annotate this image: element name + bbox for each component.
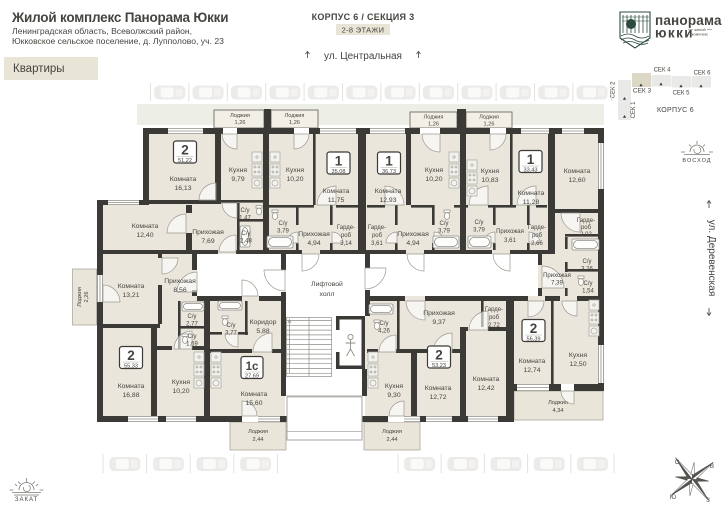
svg-text:Гарде-: Гарде- (485, 307, 503, 313)
svg-text:1,26: 1,26 (428, 122, 439, 128)
svg-text:2,26: 2,26 (84, 292, 90, 303)
svg-text:С/у: С/у (583, 259, 592, 265)
svg-text:9,30: 9,30 (387, 392, 400, 399)
svg-text:10,20: 10,20 (286, 176, 303, 183)
svg-text:С/у: С/у (188, 314, 197, 320)
svg-text:1,26: 1,26 (484, 122, 495, 128)
svg-text:10,20: 10,20 (172, 388, 189, 395)
svg-text:Прихожая: Прихожая (192, 229, 224, 236)
svg-text:12,93: 12,93 (379, 197, 396, 204)
svg-text:Гарде-: Гарде- (577, 218, 595, 224)
svg-text:1: 1 (335, 154, 343, 169)
svg-text:Лоджия: Лоджия (77, 287, 83, 307)
svg-text:10,20: 10,20 (425, 176, 442, 183)
svg-text:ВОСХОД: ВОСХОД (682, 158, 711, 164)
svg-text:СЕК 6: СЕК 6 (694, 71, 711, 77)
svg-text:7,39: 7,39 (551, 281, 563, 287)
svg-text:3,61: 3,61 (504, 238, 516, 244)
svg-text:9,37: 9,37 (432, 319, 445, 326)
svg-text:Комната: Комната (519, 358, 546, 365)
svg-text:35,08: 35,08 (332, 169, 346, 175)
svg-text:Ю: Ю (670, 494, 676, 501)
svg-text:4,26: 4,26 (378, 329, 390, 335)
svg-text:55,33: 55,33 (124, 364, 138, 370)
svg-text:роб: роб (341, 233, 352, 239)
svg-text:Лоджия: Лоджия (248, 429, 268, 435)
svg-text:16,88: 16,88 (122, 392, 139, 399)
svg-text:С/у: С/у (584, 281, 593, 287)
svg-text:Лоджия: Лоджия (479, 115, 499, 121)
svg-text:ул. Центральная: ул. Центральная (324, 51, 402, 62)
svg-text:1,26: 1,26 (235, 120, 246, 126)
svg-text:Юкковское сельское поселение,: Юкковское сельское поселение, д. Лупполо… (12, 36, 224, 46)
svg-text:2: 2 (530, 321, 538, 336)
svg-text:1: 1 (527, 152, 535, 167)
svg-text:Кухня: Кухня (425, 167, 444, 174)
svg-text:9,79: 9,79 (231, 176, 244, 183)
svg-text:2: 2 (181, 143, 189, 158)
svg-text:Лоджия: Лоджия (285, 113, 305, 119)
svg-text:Кухня: Кухня (229, 167, 248, 174)
svg-text:Прихожая: Прихожая (496, 229, 524, 235)
svg-text:3,79: 3,79 (438, 229, 450, 235)
svg-text:Кухня: Кухня (172, 379, 191, 386)
svg-text:комплекс: комплекс (692, 33, 709, 37)
svg-text:12,72: 12,72 (429, 394, 446, 401)
svg-text:27,69: 27,69 (245, 374, 259, 380)
svg-text:12,74: 12,74 (523, 367, 540, 374)
svg-text:Лоджия: Лоджия (382, 429, 402, 435)
svg-text:3,77: 3,77 (225, 331, 237, 337)
svg-text:4,94: 4,94 (406, 240, 419, 247)
svg-text:С/у: С/у (188, 334, 197, 340)
svg-text:3,61: 3,61 (371, 241, 383, 247)
svg-text:51,22: 51,22 (178, 158, 192, 164)
svg-text:1,69: 1,69 (186, 342, 198, 348)
svg-text:2,44: 2,44 (253, 437, 264, 443)
svg-text:холл: холл (320, 291, 335, 298)
svg-text:2: 2 (127, 348, 135, 363)
svg-text:С/у: С/у (440, 221, 449, 227)
svg-text:11,28: 11,28 (523, 199, 540, 206)
svg-text:1,26: 1,26 (289, 120, 300, 126)
svg-text:10,83: 10,83 (481, 177, 498, 184)
svg-text:Прихожая: Прихожая (423, 310, 455, 317)
svg-text:Комната: Комната (375, 188, 402, 195)
svg-text:КОРПУС 6: КОРПУС 6 (657, 107, 694, 114)
svg-text:2: 2 (435, 348, 443, 363)
svg-text:Лоджия: Лоджия (230, 113, 250, 119)
svg-text:Кухня: Кухня (385, 383, 404, 390)
svg-text:Прихожая: Прихожая (298, 231, 330, 238)
svg-text:Прихожая: Прихожая (164, 278, 196, 285)
svg-text:СЕК 4: СЕК 4 (654, 68, 671, 74)
svg-text:2,48: 2,48 (240, 239, 252, 245)
svg-text:В: В (710, 463, 714, 470)
svg-text:Прихожая: Прихожая (543, 273, 571, 279)
svg-text:ЗАКАТ: ЗАКАТ (15, 497, 38, 503)
svg-text:Комната: Комната (170, 176, 197, 183)
svg-text:Комната: Комната (473, 376, 500, 383)
svg-text:С/у: С/у (241, 208, 250, 214)
svg-text:роб: роб (581, 225, 592, 231)
svg-text:Коридор: Коридор (250, 319, 277, 326)
svg-text:СЕК 1: СЕК 1 (631, 101, 637, 118)
svg-text:8,56: 8,56 (173, 287, 186, 294)
svg-text:1с: 1с (246, 361, 259, 373)
svg-text:Комната: Комната (518, 190, 545, 197)
svg-text:2,72: 2,72 (488, 323, 500, 329)
svg-text:Лоджия: Лоджия (424, 115, 444, 121)
svg-text:Комната: Комната (564, 168, 591, 175)
svg-text:С: С (675, 459, 680, 466)
svg-text:Гарде-: Гарде- (337, 225, 355, 231)
svg-text:2,02: 2,02 (580, 232, 592, 238)
svg-text:15,60: 15,60 (245, 400, 262, 407)
svg-text:роб: роб (489, 315, 500, 321)
svg-text:12,40: 12,40 (136, 232, 153, 239)
svg-text:2,66: 2,66 (531, 241, 543, 247)
svg-text:ул. Деревенская: ул. Деревенская (706, 220, 717, 296)
svg-text:1,47: 1,47 (239, 216, 251, 222)
svg-text:СЕК 3: СЕК 3 (633, 88, 652, 95)
svg-text:3,26: 3,26 (581, 267, 593, 273)
svg-text:Лоджия: Лоджия (548, 400, 568, 406)
svg-text:Комната: Комната (323, 188, 350, 195)
svg-text:Квартиры: Квартиры (13, 63, 65, 75)
svg-text:С/у: С/у (475, 220, 484, 226)
svg-text:Ленинградская область, Всеволж: Ленинградская область, Всеволжский район… (12, 26, 192, 36)
svg-text:33,43: 33,43 (524, 168, 538, 174)
svg-text:3,79: 3,79 (473, 228, 485, 234)
svg-text:Кухня: Кухня (286, 167, 305, 174)
svg-text:жилой: жилой (694, 28, 705, 32)
svg-text:12,42: 12,42 (477, 385, 494, 392)
svg-text:Комната: Комната (132, 223, 159, 230)
svg-text:роб: роб (372, 233, 383, 239)
svg-text:Кухня: Кухня (569, 352, 588, 359)
svg-text:Гарде-: Гарде- (368, 225, 386, 231)
svg-text:Комната: Комната (118, 283, 145, 290)
svg-text:4,34: 4,34 (553, 408, 564, 414)
svg-text:СЕК 5: СЕК 5 (673, 91, 690, 97)
svg-text:3,79: 3,79 (277, 229, 289, 235)
svg-text:З: З (706, 497, 710, 504)
svg-text:Кухня: Кухня (481, 168, 500, 175)
svg-text:5,88: 5,88 (256, 328, 269, 335)
svg-text:КОРПУС 6 / СЕКЦИЯ 3: КОРПУС 6 / СЕКЦИЯ 3 (312, 12, 415, 22)
svg-text:12,60: 12,60 (568, 177, 585, 184)
svg-text:4,94: 4,94 (307, 240, 320, 247)
svg-text:2,77: 2,77 (186, 322, 198, 328)
svg-text:С/у: С/у (242, 231, 251, 237)
svg-text:С/у: С/у (380, 321, 389, 327)
svg-text:2,44: 2,44 (387, 437, 398, 443)
svg-text:53,23: 53,23 (432, 363, 446, 369)
svg-text:56,39: 56,39 (527, 337, 541, 343)
svg-text:роб: роб (532, 233, 543, 239)
svg-text:С/у: С/у (279, 221, 288, 227)
svg-text:юкки: юкки (655, 26, 694, 41)
svg-text:3,14: 3,14 (340, 241, 352, 247)
svg-text:Жилой комплекс Панорама Юкки: Жилой комплекс Панорама Юкки (11, 10, 228, 25)
svg-text:7,69: 7,69 (201, 238, 214, 245)
svg-text:16,13: 16,13 (174, 185, 191, 192)
svg-text:Прихожая: Прихожая (397, 231, 429, 238)
svg-text:С/у: С/у (227, 323, 236, 329)
svg-text:Комната: Комната (118, 383, 145, 390)
svg-text:2-8 ЭТАЖИ: 2-8 ЭТАЖИ (342, 26, 385, 35)
svg-text:1: 1 (385, 154, 393, 169)
svg-text:Лифтовой: Лифтовой (311, 280, 343, 288)
svg-text:36,73: 36,73 (382, 169, 396, 175)
svg-text:12,50: 12,50 (569, 361, 586, 368)
svg-text:Гарде-: Гарде- (528, 225, 546, 231)
svg-text:1,54: 1,54 (582, 289, 594, 295)
svg-text:11,75: 11,75 (328, 197, 345, 204)
svg-text:Комната: Комната (425, 385, 452, 392)
svg-text:13,21: 13,21 (122, 292, 139, 299)
svg-text:Комната: Комната (241, 391, 268, 398)
